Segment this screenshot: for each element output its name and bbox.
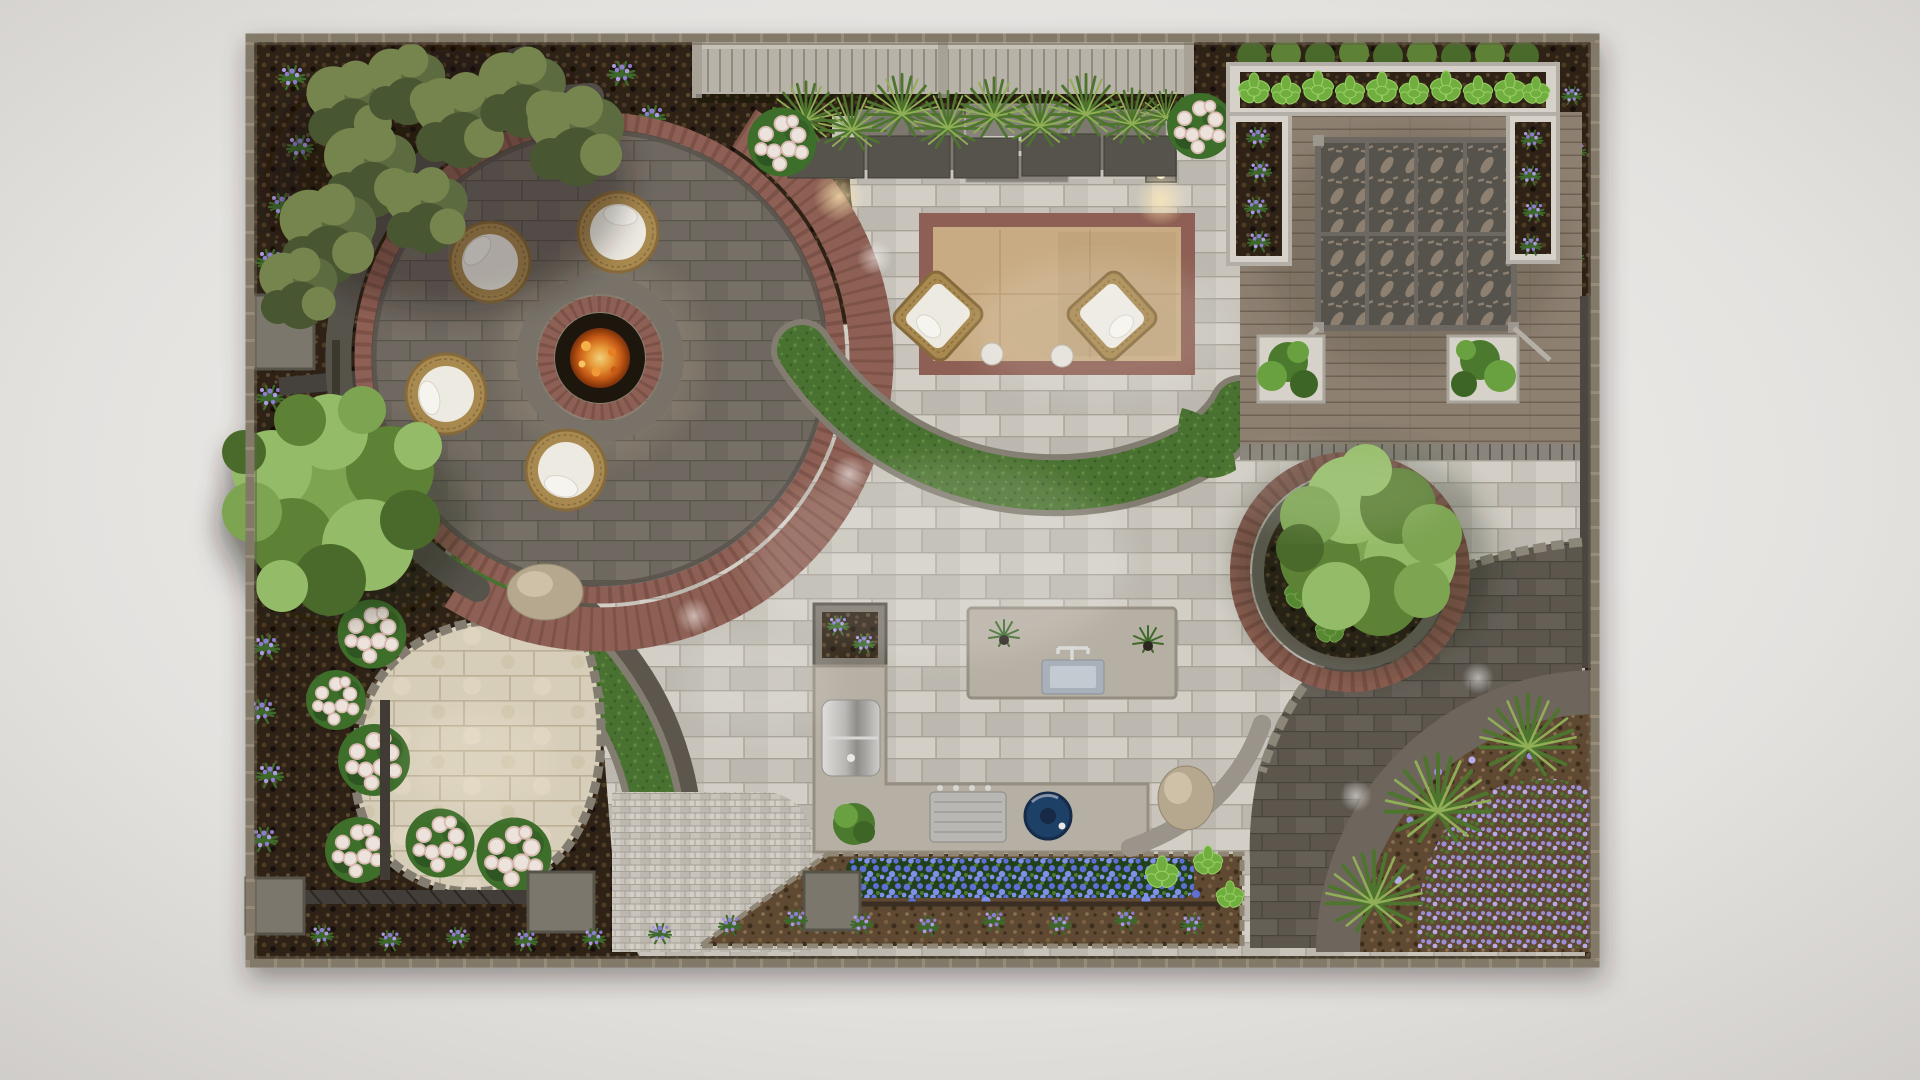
bed-light: [1340, 780, 1372, 812]
deck-planter-left: [1257, 336, 1324, 402]
fire-flames: [570, 328, 630, 388]
cube-planter: [528, 872, 594, 932]
deck-planter-right: [1448, 336, 1518, 402]
blue-flower-strip: [846, 858, 1194, 898]
garden-plan: [220, 38, 1598, 963]
render-canvas: [0, 0, 1920, 1080]
kamado-grill: [1025, 793, 1071, 839]
garden-screen: [380, 700, 390, 880]
griddle: [930, 785, 1006, 842]
cube-planter: [246, 878, 304, 934]
grill: [822, 700, 880, 776]
white-hydrangea-top-right: [1167, 93, 1233, 159]
garden-bench: [300, 890, 530, 904]
white-hydrangea-top-left: [748, 108, 817, 177]
landscape-plan-render: [0, 0, 1920, 1080]
bed-light: [1462, 662, 1494, 694]
